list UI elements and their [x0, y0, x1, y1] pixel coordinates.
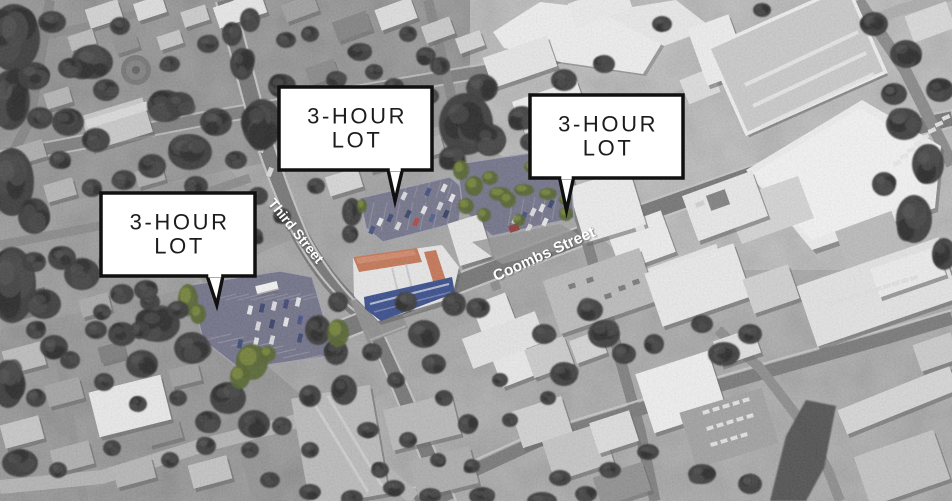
svg-text:3-HOUR: 3-HOUR [130, 210, 230, 235]
svg-text:3-HOUR: 3-HOUR [307, 104, 407, 129]
svg-text:LOT: LOT [154, 234, 205, 259]
svg-text:LOT: LOT [332, 128, 383, 153]
svg-text:LOT: LOT [583, 136, 634, 161]
svg-text:3-HOUR: 3-HOUR [558, 112, 658, 137]
